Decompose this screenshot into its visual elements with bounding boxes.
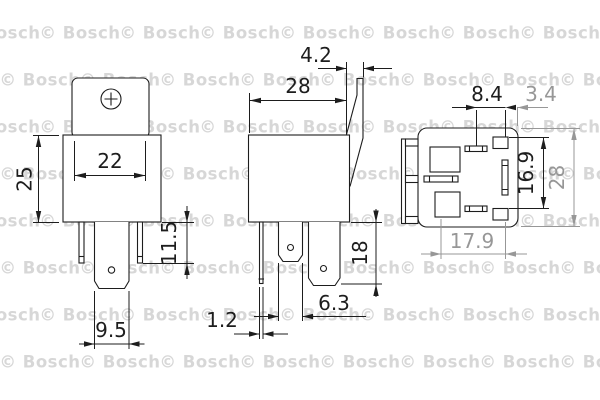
blade-slot-top-center [465, 146, 487, 152]
pin-hole [321, 266, 327, 272]
dim-bottom-edge-offset: 3.4 [518, 82, 557, 126]
dim-side-depth-label: 28 [285, 74, 310, 98]
pin-hole [288, 245, 294, 251]
dim-bottom-edge-offset-label: 3.4 [525, 82, 557, 106]
terminal-pad-bottom-right [493, 209, 508, 221]
terminal-pad-top-left [430, 147, 460, 172]
bracket-tab [406, 139, 419, 146]
front-view: 22 25 11.5 9.5 [13, 78, 195, 349]
dim-side-bracket-thickness: 4.2 [300, 43, 392, 134]
dim-side-blade-width-label: 6.3 [318, 291, 350, 315]
dim-side-terminal-length-label: 18 [348, 240, 372, 265]
dim-side-pin-thickness: 1.2 [206, 287, 288, 339]
dim-bottom-pin-span-label: 17.9 [450, 229, 495, 253]
bottom-view: 8.4 3.4 16.9 28 [402, 82, 581, 259]
blade-slot-left [424, 176, 458, 182]
blade-slot-vertical [502, 160, 508, 195]
dim-front-terminal-length-label: 11.5 [157, 221, 181, 266]
pin-thin-side [260, 222, 264, 284]
blade-slot-bottom-center [465, 206, 487, 212]
dim-front-blade-width-label: 9.5 [95, 318, 127, 342]
bracket-plate-edge [402, 139, 406, 224]
dim-bottom-height-label: 28 [545, 165, 569, 190]
bracket-tab [406, 176, 419, 183]
pin-wide-side [309, 222, 341, 286]
bracket-tab [406, 217, 419, 224]
blade-terminal-front [95, 222, 130, 289]
dim-bottom-pin-pitch-label: 16.9 [514, 151, 538, 196]
blade-hole [108, 267, 114, 273]
terminal-pad-top-right [493, 137, 508, 149]
dim-front-height-label: 25 [13, 166, 37, 191]
side-view: 4.2 28 18 6.3 [206, 43, 392, 339]
dim-side-bracket-thickness-label: 4.2 [300, 43, 332, 67]
dim-side-depth: 28 [250, 74, 347, 133]
dim-side-pin-thickness-label: 1.2 [206, 308, 238, 332]
relay-body-side [249, 135, 350, 222]
terminal-pad-bottom-left [435, 192, 460, 217]
technical-drawing: © Bosch© Bosch© Bosch© Bosch© Bosch© Bos… [0, 0, 600, 400]
relay-drawing-svg: 22 25 11.5 9.5 [0, 0, 600, 400]
dim-front-blade-width: 9.5 [79, 291, 145, 349]
dim-front-width-label: 22 [97, 149, 122, 173]
dim-bottom-pin-offset-label: 8.4 [471, 82, 503, 106]
pin-medium-side [279, 222, 303, 262]
dim-front-height: 25 [13, 136, 60, 223]
